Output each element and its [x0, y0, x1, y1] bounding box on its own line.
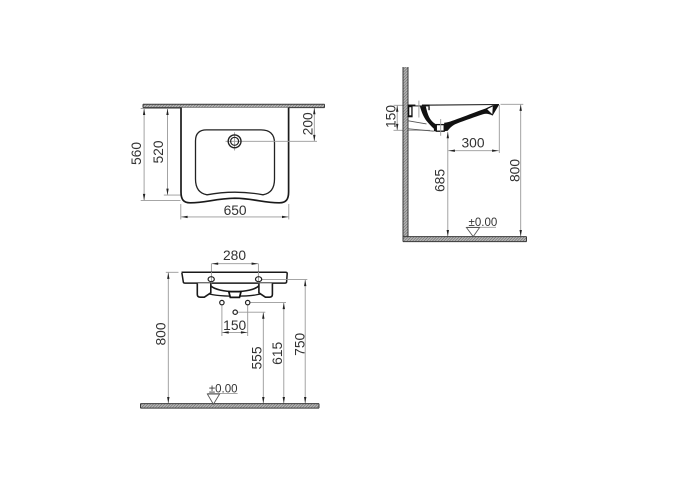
svg-text:300: 300 [461, 135, 484, 150]
svg-text:650: 650 [224, 203, 247, 218]
svg-text:750: 750 [292, 332, 307, 355]
svg-text:150: 150 [384, 105, 399, 128]
svg-text:615: 615 [270, 341, 285, 364]
svg-text:560: 560 [129, 142, 144, 165]
svg-text:520: 520 [151, 140, 166, 163]
svg-text:280: 280 [223, 248, 246, 263]
svg-text:555: 555 [250, 346, 265, 369]
svg-text:800: 800 [154, 322, 169, 345]
svg-text:150: 150 [223, 318, 246, 333]
svg-text:685: 685 [433, 169, 448, 192]
svg-text:800: 800 [508, 159, 523, 182]
svg-text:200: 200 [301, 112, 316, 135]
